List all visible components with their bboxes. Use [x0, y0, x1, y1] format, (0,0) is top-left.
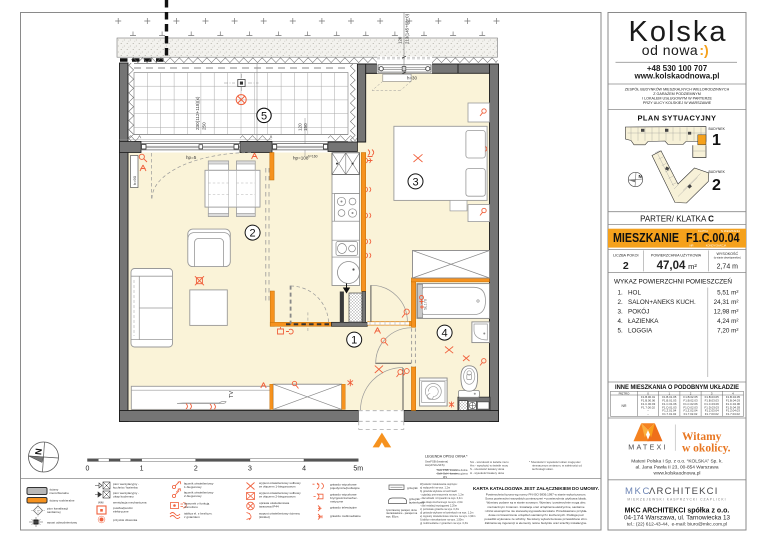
- svg-text:ZESPÓŁ BUDYNKÓW MIESZKALNYCH W: ZESPÓŁ BUDYNKÓW MIESZKALNYCH WIELORODZIN…: [625, 87, 730, 92]
- svg-text:Wysokość instalowania osprzętu: Wysokość instalowania osprzętu:: [420, 482, 458, 486]
- svg-text:F1.7.01.02: F1.7.01.02: [662, 412, 676, 416]
- svg-text:ze złączem 1-biegunowym: ze złączem 1-biegunowym: [259, 485, 296, 489]
- svg-text:PRZY ULICY KOLSKIEJ W WARSZAWI: PRZY ULICY KOLSKIEJ W WARSZAWIE: [643, 101, 712, 105]
- svg-text:120: 120: [397, 36, 402, 44]
- svg-text:MKC: MKC: [625, 486, 651, 497]
- svg-text:Zabrania się ingerencji w elem: Zabrania się ingerencji w elementy nośne…: [485, 521, 588, 525]
- svg-text:HOL: HOL: [628, 289, 641, 296]
- svg-text:m²: m²: [688, 262, 697, 271]
- svg-text:c) pozostałe gniazda na wys. 0: c) pozostałe gniazda na wys. 0,3m: [420, 507, 459, 511]
- svg-text:Matexi Polska I Sp. z o.o. “KO: Matexi Polska I Sp. z o.o. “KOLSKA” Sp. …: [631, 458, 722, 464]
- svg-text:NR: NR: [622, 404, 627, 408]
- svg-text:230(112+118)(x): 230(112+118)(x): [195, 96, 200, 130]
- svg-text:4.: 4.: [618, 318, 624, 325]
- svg-text:150: 150: [303, 123, 308, 131]
- svg-text:04-174 Warszawa, ul. Tarnowiec: 04-174 Warszawa, ul. Tarnowiecka 13: [624, 515, 731, 522]
- svg-text:- dla okapu kuchennego na wys.: - dla okapu kuchennego na wys. 2,0m: [420, 500, 463, 504]
- svg-text:domofonu: domofonu: [184, 505, 198, 509]
- svg-text:BUDYNEK: BUDYNEK: [709, 170, 726, 174]
- svg-text:2: 2: [194, 466, 198, 473]
- svg-text:2.: 2.: [618, 299, 624, 306]
- svg-text:tarasowa IP44: tarasowa IP44: [259, 505, 279, 509]
- svg-text:tel.: (22) 612-43-44, e-mail:: tel.: (22) 612-43-44, e-mail: biuro@mkc.…: [627, 521, 727, 527]
- svg-text:12,98 m²: 12,98 m²: [714, 309, 739, 316]
- svg-text:WYSOKOŚĆ: WYSOKOŚĆ: [716, 251, 738, 256]
- svg-text:ΛRCHITEKCI: ΛRCHITEKCI: [649, 486, 719, 497]
- svg-text:Hw(xFS0+SFS): Hw(xFS0+SFS): [425, 463, 445, 467]
- svg-text:Witamy: Witamy: [682, 431, 722, 443]
- svg-text:PARTER/ KLATKA C: PARTER/ KLATKA C: [640, 215, 714, 224]
- svg-text:grzejnik: grzejnik: [407, 486, 418, 490]
- svg-text:F1.7.03.02: F1.7.03.02: [705, 412, 719, 416]
- svg-text:a) wyłączniki na wys. 1,2m: a) wyłączniki na wys. 1,2m: [420, 486, 450, 490]
- svg-text:250: 250: [202, 122, 207, 130]
- svg-text:#|S: #|S: [443, 475, 447, 479]
- svg-text:h=160: h=160: [308, 155, 318, 159]
- svg-text:www.kolskaodnowa.pl: www.kolskaodnowa.pl: [654, 471, 701, 477]
- svg-text:3: 3: [412, 176, 418, 188]
- svg-text:2: 2: [623, 260, 629, 272]
- svg-text:2-biegunowy: 2-biegunowy: [184, 494, 202, 498]
- svg-text:WYKAZ POWIERZCHNI POMIESZCZEŃ: WYKAZ POWIERZCHNI POMIESZCZEŃ: [614, 277, 732, 286]
- svg-text:Z GARAŻEM PODZIEMNYM: Z GARAŻEM PODZIEMNYM: [653, 91, 701, 96]
- svg-text:4,24 m²: 4,24 m²: [717, 318, 738, 325]
- svg-text:5.: 5.: [618, 328, 624, 335]
- svg-text:LEGENDA OPISU OKNA *: LEGENDA OPISU OKNA *: [425, 455, 468, 459]
- svg-text:5,51 m²: 5,51 m²: [717, 289, 738, 296]
- svg-text:3: 3: [248, 466, 252, 473]
- svg-text:1-biegunowy: 1-biegunowy: [184, 485, 202, 489]
- svg-text:24,31 m²: 24,31 m²: [714, 299, 739, 306]
- svg-text:KONDYGNACJA: KONDYGNACJA: [706, 244, 727, 248]
- svg-text:1: 1: [140, 466, 144, 473]
- svg-text:N: N: [33, 448, 44, 456]
- svg-text:kuchnia / łazienka: kuchnia / łazienka: [113, 486, 138, 490]
- svg-text:INNE MIESZKANIA O PODOBNYM UKŁ: INNE MIESZKANIA O PODOBNYM UKŁADZIE: [615, 384, 739, 391]
- svg-text:4: 4: [442, 328, 448, 340]
- svg-text:120: 120: [298, 123, 303, 131]
- svg-text:technologii okien.: technologii okien.: [532, 467, 554, 471]
- svg-text:TV: TV: [229, 391, 235, 398]
- svg-text:sanitarnej: sanitarnej: [47, 510, 61, 514]
- svg-text:- dla lodówki i zmywarki na wy: - dla lodówki i zmywarki na wys. 0,4m: [420, 496, 462, 500]
- svg-text:h=90: h=90: [132, 175, 137, 185]
- svg-text:al. Jana Pawła II 23, 00-854 W: al. Jana Pawła II 23, 00-854 Warszawa: [635, 465, 718, 471]
- svg-text:hp=108: hp=108: [293, 156, 309, 161]
- svg-text:WM: WM: [98, 501, 104, 505]
- svg-text:I LOKALEM USŁUGOWYM W PARTERZE: I LOKALEM USŁUGOWYM W PARTERZE: [642, 97, 712, 101]
- svg-text:7,20 m²: 7,20 m²: [717, 328, 738, 335]
- svg-text:F1.7.04.02: F1.7.04.02: [726, 412, 740, 416]
- svg-text:gniazdo multimedialne: gniazdo multimedialne: [330, 514, 361, 518]
- svg-text:47,04: 47,04: [657, 260, 686, 272]
- svg-text:KARTA KATALOGOWA JEST ZAŁĄCZNI: KARTA KATALOGOWA JEST ZAŁĄCZNIKIEM DO UM…: [473, 486, 599, 492]
- svg-text:PLAN SYTUACYJNY: PLAN SYTUACYJNY: [638, 114, 717, 123]
- svg-text:1: 1: [351, 335, 357, 347]
- svg-text:b) gniazda wtykowe w kuchniach: b) gniazda wtykowe w kuchniach: [420, 489, 458, 493]
- svg-text:LOGGIA: LOGGIA: [628, 328, 653, 335]
- svg-text:f) tablice mieszkaniowe na wys: f) tablice mieszkaniowe na wys. 1,90m: [420, 518, 463, 522]
- svg-text:wpust odwodnieniowy: wpust odwodnieniowy: [47, 521, 78, 525]
- svg-text:www.kolskaodnowa.pl: www.kolskaodnowa.pl: [633, 72, 719, 81]
- svg-text:0: 0: [86, 466, 90, 473]
- svg-text:przycisk dzwonka: przycisk dzwonka: [113, 518, 138, 522]
- svg-text:SALON+ANEKS KUCH.: SALON+ANEKS KUCH.: [628, 299, 696, 306]
- svg-text:ściany rozbieralne: ściany rozbieralne: [50, 499, 75, 503]
- svg-text:ŁAZIENKA: ŁAZIENKA: [628, 318, 659, 325]
- svg-text:213(145+68+0): 213(145+68+0): [404, 13, 409, 44]
- svg-text:g) multimedialne z gniazdem na: g) multimedialne z gniazdem na wys. 0,3m: [420, 521, 468, 525]
- svg-text:POKÓJ: POKÓJ: [628, 307, 649, 316]
- svg-text:h=30: h=30: [407, 76, 417, 81]
- svg-text:F1.7.02.02: F1.7.02.02: [684, 412, 698, 416]
- svg-text:MIESZKANIE: MIESZKANIE: [613, 230, 679, 245]
- svg-text:KLATKA: KLATKA: [698, 229, 708, 233]
- svg-text:5m: 5m: [353, 466, 363, 473]
- svg-text:4: 4: [302, 466, 306, 473]
- svg-text:5: 5: [261, 110, 267, 122]
- svg-text:ze złączem 2-biegunowym: ze złączem 2-biegunowym: [259, 495, 296, 499]
- svg-text:N: N: [639, 174, 642, 179]
- svg-text:H - wysokość kwatery okna: H - wysokość kwatery okna: [470, 471, 504, 475]
- svg-text:(kinkiet): (kinkiet): [259, 515, 270, 519]
- svg-text:okap kuchenny: okap kuchenny: [113, 495, 134, 499]
- svg-text:2,74 m: 2,74 m: [717, 264, 739, 271]
- svg-text:BUDYNEK: BUDYNEK: [709, 127, 726, 131]
- svg-text::): :): [699, 42, 708, 58]
- svg-text:1: 1: [712, 132, 721, 149]
- svg-text:hp=5: hp=5: [186, 155, 197, 160]
- svg-text:3.: 3.: [618, 309, 624, 316]
- svg-text:POWIERZCHNIA UŻYTKOWA: POWIERZCHNIA UŻYTKOWA: [651, 253, 702, 258]
- svg-text:N MIESZKANIA: N MIESZKANIA: [721, 229, 740, 233]
- svg-text:- dla instalacji wyciągowej 2,: - dla instalacji wyciągowej 2,20m: [420, 503, 457, 507]
- svg-text:wentylacja mechaniczna: wentylacja mechaniczna: [113, 501, 147, 505]
- svg-text:MATEXI: MATEXI: [628, 443, 667, 452]
- svg-text:w okolicy.: w okolicy.: [682, 443, 731, 455]
- svg-text:MIERZEJEWSKI KASPRZYCKI CZAPLI: MIERZEJEWSKI KASPRZYCKI CZAPLICKI: [627, 497, 726, 501]
- svg-text:MKC ARCHITEKCI spółka z o.o.: MKC ARCHITEKCI spółka z o.o.: [625, 508, 730, 515]
- svg-text:d) gniazda wtykowe w łazienkac: d) gniazda wtykowe w łazienkach na wys. …: [420, 510, 473, 514]
- svg-text:pojedyncze/podwójne: pojedyncze/podwójne: [330, 486, 360, 490]
- svg-text:- ogiędajc przeznaczenia na wy: - ogiędajc przeznaczenia na wys. 1,2m: [420, 493, 464, 497]
- svg-text:metyczne: metyczne: [330, 500, 344, 504]
- svg-text:1.: 1.: [618, 289, 624, 296]
- svg-text:z gniazdem: z gniazdem: [184, 515, 200, 519]
- svg-text:wys. 85cm.: wys. 85cm.: [386, 514, 399, 518]
- svg-text:PIĘTRO: PIĘTRO: [619, 391, 631, 395]
- svg-text:NR: NR: [690, 244, 694, 248]
- svg-text:od nowa: od nowa: [642, 42, 698, 58]
- svg-text:SL170: SL170: [424, 299, 428, 310]
- svg-text:gniazdo telewizyjne: gniazdo telewizyjne: [330, 506, 357, 510]
- svg-text:2: 2: [250, 228, 256, 240]
- svg-text:2: 2: [712, 177, 721, 194]
- svg-text:elektryczne: elektryczne: [113, 510, 129, 514]
- svg-text:(w stanie deweloperskim): (w stanie deweloperskim): [714, 256, 741, 259]
- svg-text:nierozbieralne: nierozbieralne: [50, 491, 70, 495]
- svg-text:e) wypusty oświetleniowe ścien: e) wypusty oświetleniowe ścienne na wys.…: [420, 514, 475, 518]
- svg-text:LICZBA POKOI: LICZBA POKOI: [613, 254, 638, 258]
